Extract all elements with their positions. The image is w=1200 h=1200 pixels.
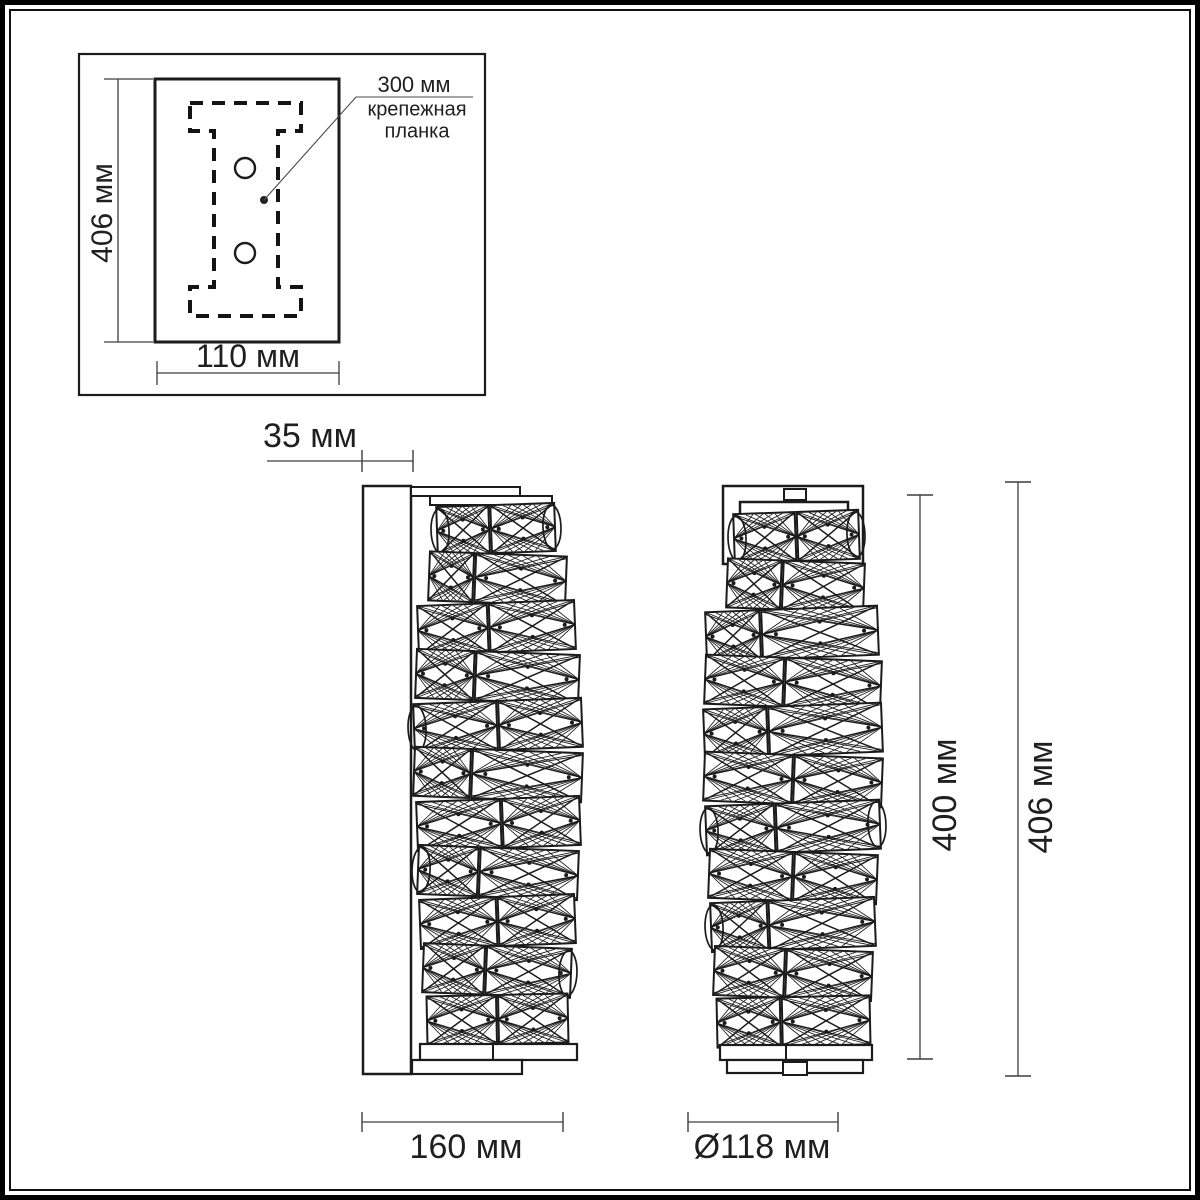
crystal-row bbox=[413, 747, 583, 802]
crystal-row bbox=[430, 503, 562, 556]
crystal-row bbox=[428, 551, 567, 605]
crystal-row bbox=[417, 600, 576, 655]
crystal-row bbox=[727, 510, 866, 564]
crystal-row bbox=[713, 946, 873, 1001]
crystal-row bbox=[704, 897, 876, 952]
front-view bbox=[699, 486, 887, 1075]
crystal-row bbox=[704, 655, 882, 711]
crystal-row bbox=[717, 995, 871, 1047]
crystal-row bbox=[703, 703, 883, 759]
crystal-row bbox=[699, 799, 887, 855]
crystal-row bbox=[422, 943, 578, 998]
dim-body-height-label: 400 мм bbox=[928, 739, 962, 852]
inset-width-label: 110 мм bbox=[196, 340, 300, 372]
crystal-row bbox=[416, 796, 581, 851]
crystal-row bbox=[708, 849, 878, 904]
crystal-row bbox=[411, 845, 579, 900]
callout-value-label: 300 мм bbox=[377, 74, 450, 96]
dim-depth-label: 35 мм bbox=[263, 419, 357, 453]
crystal-row bbox=[419, 894, 576, 949]
inset-height-label: 406 мм bbox=[88, 163, 118, 263]
drawing-canvas: 35 мм 406 мм 110 мм 300 мм крепежная пла… bbox=[0, 0, 1200, 1200]
crystal-row bbox=[415, 649, 580, 704]
crystal-row bbox=[407, 698, 583, 754]
crystal-row bbox=[427, 994, 569, 1046]
dim-total-height-label: 406 мм bbox=[1024, 741, 1058, 854]
crystal-row bbox=[703, 752, 883, 808]
crystal-row bbox=[705, 606, 879, 662]
callout-name-label: крепежная планка bbox=[342, 99, 492, 142]
technical-drawing bbox=[0, 0, 1200, 1200]
crystal-row bbox=[726, 558, 865, 612]
dim-diameter-label: Ø118 мм bbox=[694, 1130, 831, 1164]
side-view bbox=[363, 486, 583, 1074]
dim-body-width-label: 160 мм bbox=[410, 1130, 523, 1164]
